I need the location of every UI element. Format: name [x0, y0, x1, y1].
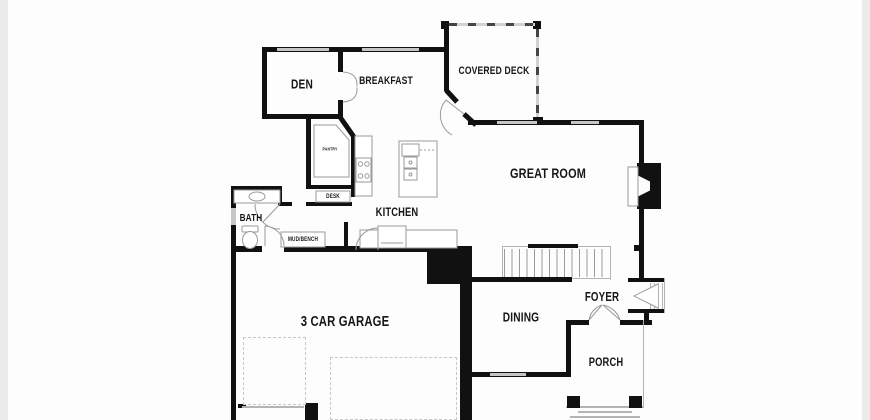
kitchen-island: [399, 141, 437, 197]
room-label-den: DEN: [291, 77, 313, 92]
fireplace: [637, 163, 661, 209]
room-label-mud-bench: MUD/BENCH: [288, 237, 318, 243]
room-label-garage: 3 CAR GARAGE: [301, 314, 390, 330]
hearth: [628, 167, 638, 206]
door-swings: [255, 72, 658, 320]
room-label-great-room: GREAT ROOM: [510, 165, 586, 181]
toilet: [243, 232, 258, 249]
room-label-covered-deck: COVERED DECK: [458, 65, 529, 77]
room-label-desk: DESK: [326, 194, 340, 200]
room-label-pantry: PANTRY: [323, 147, 338, 152]
room-label-breakfast: BREAKFAST: [359, 75, 413, 87]
room-label-foyer: FOYER: [585, 290, 619, 304]
room-label-bath: BATH: [240, 212, 263, 224]
bath-sink: [249, 192, 265, 201]
den-door: [343, 72, 357, 87]
range: [356, 158, 371, 182]
kitchen-counter: [360, 226, 457, 248]
room-label-dining: DINING: [503, 310, 539, 325]
bath-door: [263, 204, 280, 222]
closet-bifold-door: [634, 284, 658, 308]
floor-plan-image: DEN BREAKFAST COVERED DECK GREAT ROOM PA…: [0, 0, 870, 420]
room-label-porch: PORCH: [589, 355, 624, 369]
refrigerator: [378, 226, 406, 248]
fixtures-overlay: [0, 0, 870, 420]
range-counter: [355, 136, 372, 196]
room-label-kitchen: KITCHEN: [376, 205, 419, 219]
diagonal-walls: [340, 90, 476, 137]
